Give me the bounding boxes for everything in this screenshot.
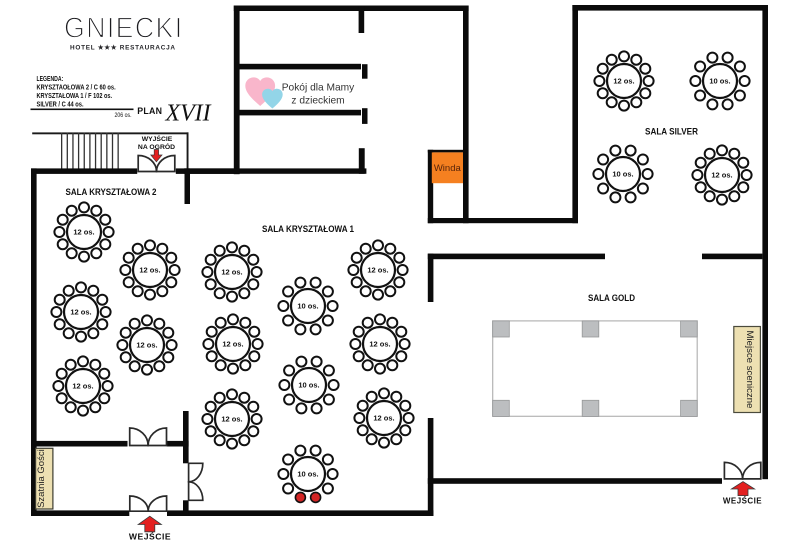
svg-text:SALA GOLD: SALA GOLD bbox=[588, 293, 635, 303]
svg-text:10 os.: 10 os. bbox=[297, 302, 318, 311]
svg-text:Szatnia Gości: Szatnia Gości bbox=[36, 449, 47, 508]
svg-text:Winda: Winda bbox=[434, 163, 462, 174]
svg-text:10 os.: 10 os. bbox=[297, 470, 318, 479]
svg-text:SILVER / C 44 os.: SILVER / C 44 os. bbox=[37, 102, 84, 109]
svg-text:12 os.: 12 os. bbox=[222, 340, 243, 349]
svg-text:z dzieckiem: z dzieckiem bbox=[291, 96, 344, 107]
svg-text:WYJŚCIE: WYJŚCIE bbox=[142, 134, 173, 143]
svg-text:KRYSZTAOŁOWA 2 / C 60 os.: KRYSZTAOŁOWA 2 / C 60 os. bbox=[37, 85, 116, 92]
svg-text:PLAN: PLAN bbox=[137, 106, 162, 116]
svg-text:KRYSZTAŁOWA 1 / F 102 os.: KRYSZTAŁOWA 1 / F 102 os. bbox=[37, 93, 113, 100]
svg-text:12 os.: 12 os. bbox=[613, 77, 634, 86]
svg-text:12 os.: 12 os. bbox=[711, 171, 732, 180]
svg-text:XVII: XVII bbox=[165, 100, 212, 126]
svg-text:12 os.: 12 os. bbox=[373, 414, 394, 423]
svg-text:12 os.: 12 os. bbox=[139, 266, 160, 275]
svg-text:WEJŚCIE: WEJŚCIE bbox=[129, 531, 171, 542]
svg-text:12 os.: 12 os. bbox=[70, 308, 91, 317]
svg-text:LEGENDA:: LEGENDA: bbox=[37, 76, 64, 83]
svg-text:SALA SILVER: SALA SILVER bbox=[645, 127, 699, 137]
svg-text:GNIECKI: GNIECKI bbox=[64, 12, 184, 44]
svg-text:12 os.: 12 os. bbox=[72, 382, 93, 391]
svg-text:Pokój dla Mamy: Pokój dla Mamy bbox=[282, 83, 355, 94]
svg-text:SALA KRYSZTAŁOWA 1: SALA KRYSZTAŁOWA 1 bbox=[262, 224, 354, 234]
svg-text:WEJŚCIE: WEJŚCIE bbox=[723, 496, 762, 505]
svg-text:206 os.: 206 os. bbox=[115, 112, 132, 119]
svg-text:SALA KRYSZTAŁOWA 2: SALA KRYSZTAŁOWA 2 bbox=[66, 187, 157, 197]
svg-text:12 os.: 12 os. bbox=[136, 341, 157, 350]
svg-text:10 os.: 10 os. bbox=[298, 381, 319, 390]
svg-text:HOTEL ★★★ RESTAURACJA: HOTEL ★★★ RESTAURACJA bbox=[70, 45, 175, 52]
svg-text:12 os.: 12 os. bbox=[367, 266, 388, 275]
svg-text:10 os.: 10 os. bbox=[709, 77, 730, 86]
svg-text:12 os.: 12 os. bbox=[221, 268, 242, 277]
svg-text:10 os.: 10 os. bbox=[612, 170, 633, 179]
svg-text:Miejsce sceniczne: Miejsce sceniczne bbox=[744, 331, 755, 409]
svg-text:12 os.: 12 os. bbox=[369, 340, 390, 349]
svg-text:12 os.: 12 os. bbox=[221, 415, 242, 424]
svg-text:12 os.: 12 os. bbox=[73, 228, 94, 237]
